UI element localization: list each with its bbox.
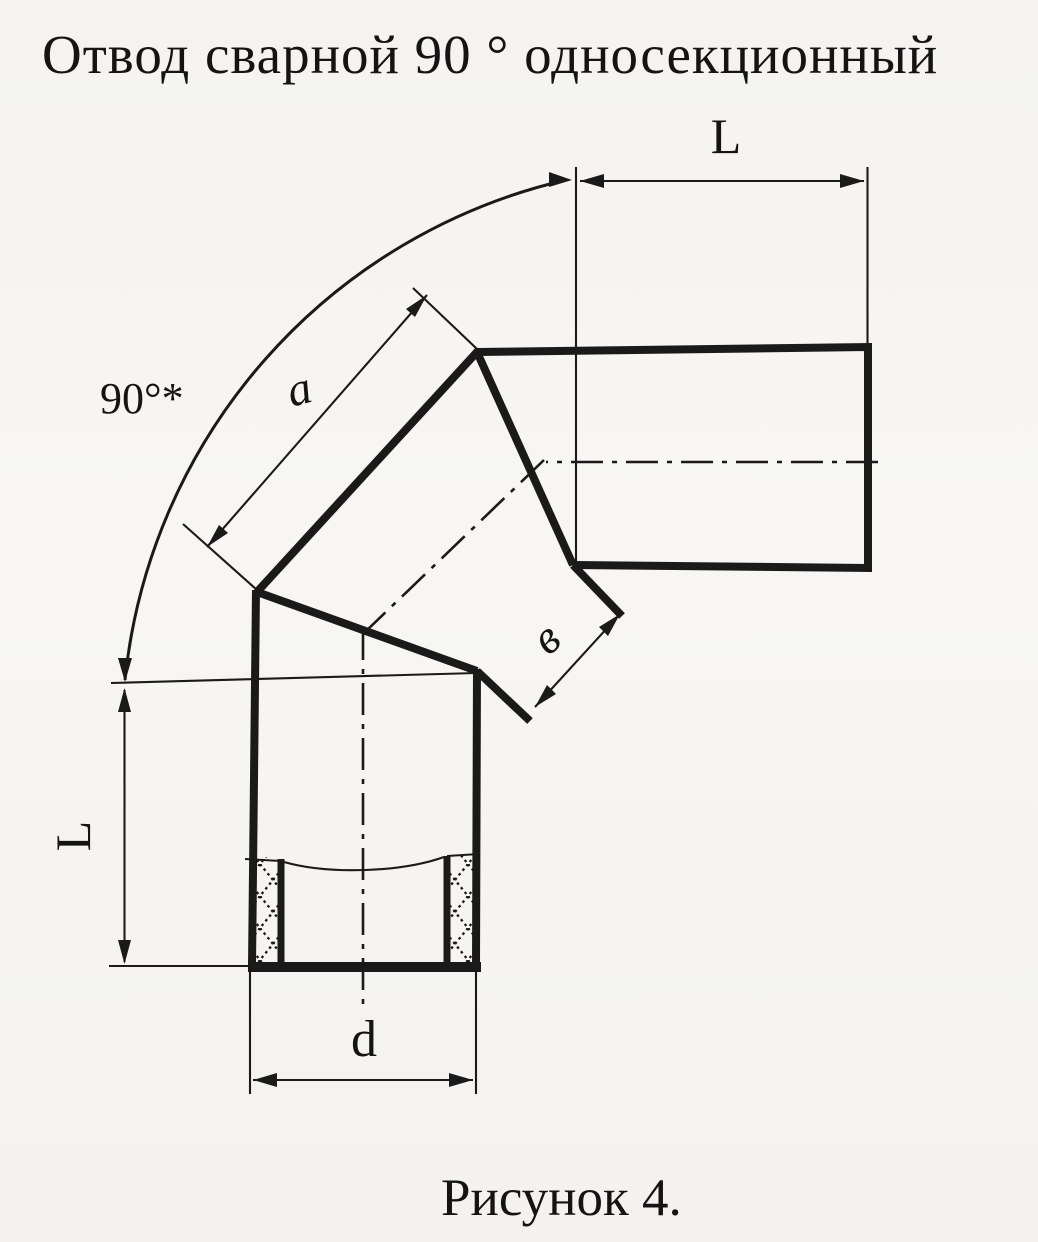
arrow-arc-bottom (118, 658, 132, 682)
socket-wall-hatch-left (255, 857, 279, 965)
vertical-pipe-right-edge (476, 669, 477, 966)
dim-label-a: a (281, 361, 317, 417)
figure-caption: Рисунок 4. (441, 1169, 682, 1227)
arrow-a-bottom (207, 525, 228, 547)
upper-seam-stub (573, 565, 622, 616)
ext-line-joint-horizontal (111, 673, 477, 683)
dim-label-b: в (522, 612, 571, 665)
dimension-lines (109, 167, 868, 1094)
arrow-a-top (406, 295, 427, 317)
arrow-L-top-left (580, 174, 604, 188)
miter-diagonal-centerline (364, 460, 544, 633)
arrow-L-left-top (118, 688, 131, 712)
angle-label: 90°* (100, 374, 184, 423)
centerlines (363, 460, 878, 1004)
angle-arc (125, 180, 566, 680)
lower-seam-stub (477, 671, 530, 721)
arrow-d-left (253, 1073, 277, 1087)
dim-line-a (207, 295, 427, 547)
dim-label-d: d (351, 1011, 377, 1068)
ext-line-a-top (413, 288, 477, 349)
arrowheads (118, 172, 864, 1087)
dim-label-L-top: L (711, 108, 742, 164)
scanned-drawing-page: Отвод сварной 90 ° односекционный L 90°*… (0, 0, 1038, 1242)
arrow-d-right (449, 1073, 473, 1087)
upper-weld-seam (477, 352, 573, 565)
arrow-L-left-bottom (118, 940, 131, 964)
socket-wall-hatch-right (450, 854, 474, 965)
arrow-L-top-right (840, 174, 864, 188)
dim-label-L-left: L (45, 821, 101, 852)
drawing-title: Отвод сварной 90 ° односекционный (42, 24, 938, 85)
arrow-arc-top (549, 172, 572, 187)
elbow-technical-drawing: Отвод сварной 90 ° односекционный L 90°*… (0, 0, 1038, 1242)
